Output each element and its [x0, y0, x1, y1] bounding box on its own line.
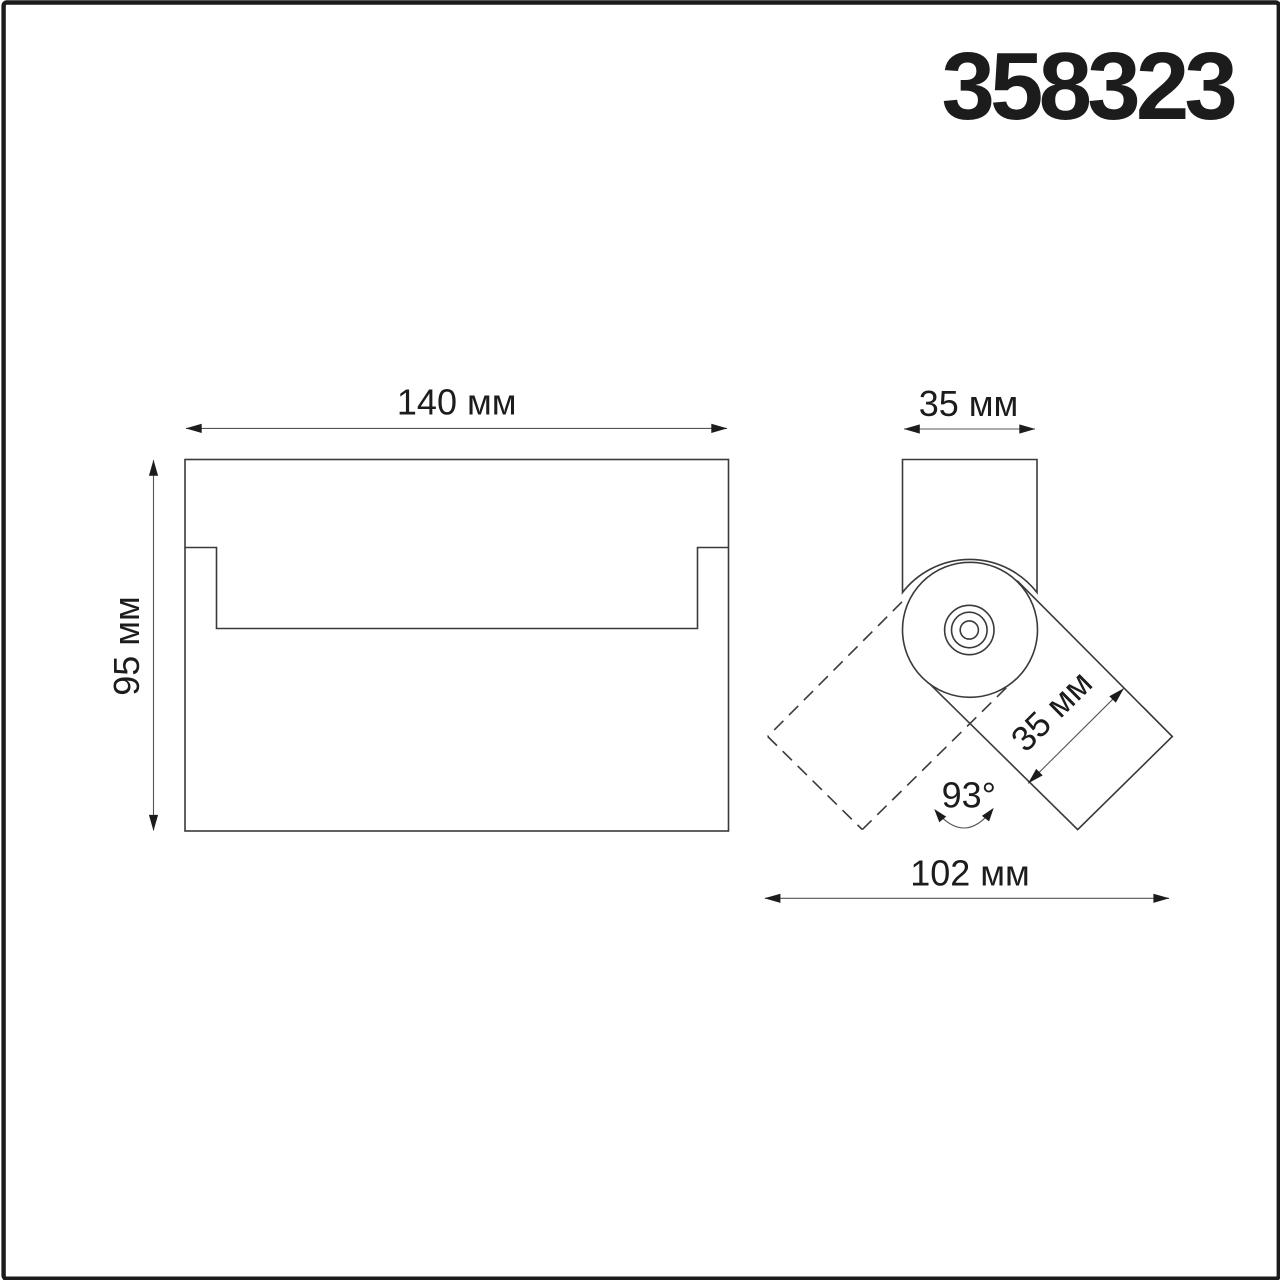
svg-text:140 мм: 140 мм: [397, 382, 517, 423]
svg-text:93°: 93°: [942, 774, 996, 815]
svg-text:95 мм: 95 мм: [106, 596, 147, 696]
svg-text:358323: 358323: [941, 33, 1234, 140]
svg-text:102 мм: 102 мм: [910, 853, 1030, 894]
svg-text:35 мм: 35 мм: [919, 383, 1019, 424]
